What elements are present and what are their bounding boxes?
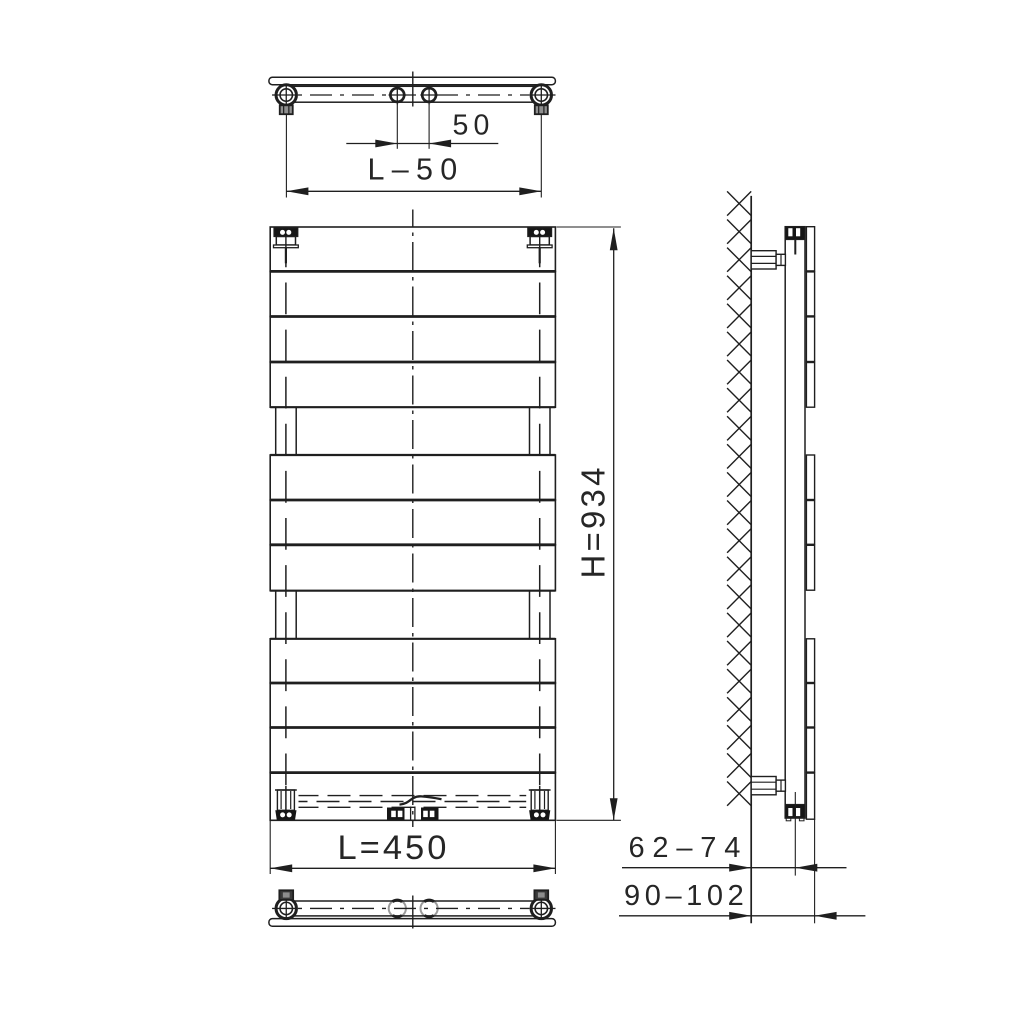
svg-text:H=934: H=934 <box>575 464 612 578</box>
svg-text:90–102: 90–102 <box>624 880 748 912</box>
svg-text:L=450: L=450 <box>338 829 450 867</box>
svg-text:62–74: 62–74 <box>629 832 749 864</box>
svg-text:50: 50 <box>453 109 495 141</box>
svg-text:L–50: L–50 <box>368 152 465 186</box>
